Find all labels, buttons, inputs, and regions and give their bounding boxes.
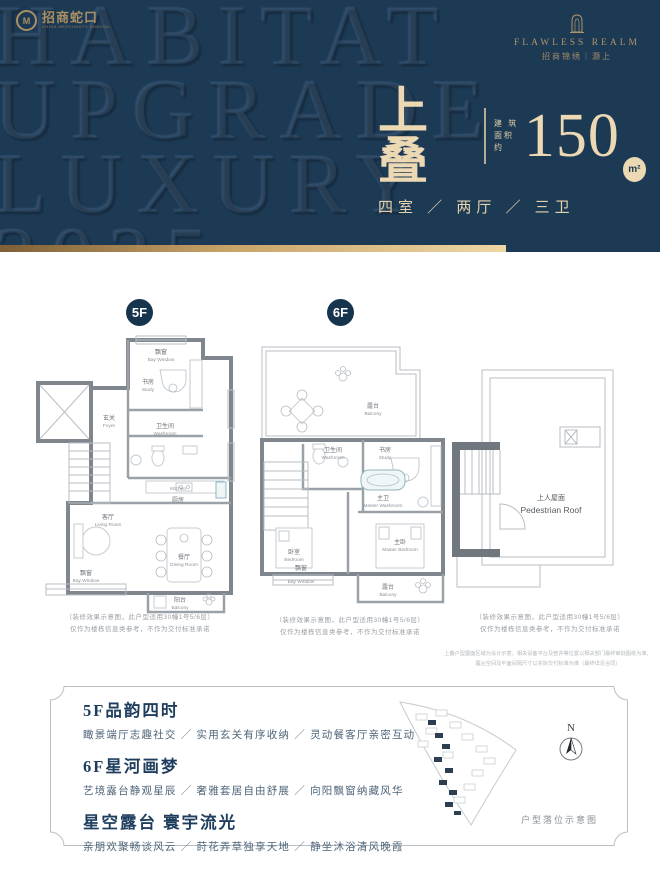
- room-label: 露台Balcony: [364, 402, 382, 417]
- feature-box: 5F品韵四时 瞰景端厅志趣社交 ／ 实用玄关有序收纳 ／ 灵动餐客厅亲密互动 6…: [50, 686, 628, 846]
- feature-item: 星空露台 寰宇流光 亲朋欢聚畅谈风云 ／ 莳花弄草独享天地 ／ 静坐沐浴清风晚霞: [83, 809, 415, 854]
- room-label: 露台Balcony: [379, 583, 397, 598]
- feature-text-column: 5F品韵四时 瞰景端厅志趣社交 ／ 实用玄关有序收纳 ／ 灵动餐客厅亲密互动 6…: [83, 697, 415, 865]
- roof-label-en: Pedestrian Roof: [521, 505, 583, 515]
- feature-title: 5F品韵四时: [83, 697, 415, 721]
- divider-line: [484, 108, 486, 164]
- room-label: 阳台Balcony: [171, 596, 189, 611]
- plan-disclaimer-6f: （装修效果示意图，此户型适用30幢1号5/6层）仅作为楼栋信息类参考，不作为交付…: [250, 615, 450, 638]
- room-label: 飘窗Bay Window: [73, 569, 100, 584]
- area-label-1: 建 筑: [494, 118, 522, 130]
- room-spec: 四室 ／ 两厅 ／ 三卫: [378, 196, 646, 217]
- plan-disclaimer-roof: （装修效果示意图，此户型适用30幢1号5/6层）仅作为楼栋信息类参考，不作为交付…: [443, 612, 657, 635]
- floorplan-6f: 露台Balcony 卫生间Washroom 书房Study 主卫Master W…: [253, 332, 448, 632]
- siteplan-caption: 户型落位示意图: [521, 813, 598, 826]
- floorplan-roof: 上人屋面 Pedestrian Roof: [445, 354, 660, 654]
- floor5-badge: 5F: [126, 299, 153, 326]
- area-unit-badge: m²: [623, 157, 646, 182]
- gold-divider-bar: [0, 245, 506, 252]
- room-label: 书房Study: [142, 378, 155, 393]
- project-name-en: FLAWLESS REALM: [512, 38, 642, 48]
- room-label: 客厅Living Room: [95, 513, 122, 528]
- room-label: 卫生间Washroom: [153, 422, 176, 437]
- area-value: 150: [524, 105, 620, 167]
- headline-block: 上叠 建 筑 面积约 150 m² 四室 ／ 两厅 ／ 三卫: [378, 86, 646, 217]
- siteplan-diagram: [388, 694, 538, 834]
- feature-title: 6F星河画梦: [83, 753, 415, 777]
- emblem-icon: [568, 12, 586, 34]
- brand-mark-icon: M: [16, 10, 37, 31]
- room-label: 主卫Master Washroom: [363, 494, 402, 509]
- brand-subtitle: CHINA MERCHANTS SHEKOU: [42, 25, 110, 29]
- roof-label: 上人屋面: [537, 493, 565, 502]
- room-label: 玄关Foyer: [103, 414, 116, 429]
- room-label: 书房Study: [379, 446, 392, 461]
- feature-title: 星空露台 寰宇流光: [83, 809, 415, 833]
- area-label-2: 面积约: [494, 130, 522, 154]
- plan-disclaimer-5f: （装修效果示意图，此户型适用30幢1号5/6层）仅作为楼栋信息类参考，不作为交付…: [35, 612, 245, 635]
- feature-desc: 亲朋欢聚畅谈风云 ／ 莳花弄草独享天地 ／ 静坐沐浴清风晚霞: [83, 839, 415, 854]
- feature-item: 6F星河画梦 艺境露台静观星辰 ／ 奢雅套居自由舒展 ／ 向阳飘窗纳藏风华: [83, 753, 415, 798]
- brand-name: 招商蛇口: [42, 11, 110, 25]
- project-name-cn: 招商锦绣｜灏上: [512, 51, 642, 62]
- compass-icon: N: [555, 720, 587, 768]
- site-building-outline: [416, 710, 495, 803]
- feature-desc: 艺境露台静观星辰 ／ 奢雅套居自由舒展 ／ 向阳飘窗纳藏风华: [83, 783, 415, 798]
- floor6-badge: 6F: [327, 299, 354, 326]
- floorplan-5f: 飘窗Bay Window 书房Study 玄关Foyer 卫生间Washroom…: [28, 328, 256, 620]
- header-banner: HABITAT UPGRADE LUXURY 2025 M 招商蛇口 CHINA…: [0, 0, 660, 252]
- brand-logo-left: M 招商蛇口 CHINA MERCHANTS SHEKOU: [16, 10, 110, 31]
- room-label: 厨房Kitchen: [170, 486, 186, 504]
- brand-logo-right: FLAWLESS REALM 招商锦绣｜灏上: [512, 12, 642, 62]
- room-label: 飘窗Bay Window: [148, 348, 175, 363]
- feature-desc: 瞰景端厅志趣社交 ／ 实用玄关有序收纳 ／ 灵动餐客厅亲密互动: [83, 727, 415, 742]
- room-label: 卫生间Washroom: [321, 446, 344, 461]
- poster-page: HABITAT UPGRADE LUXURY 2025 M 招商蛇口 CHINA…: [0, 0, 660, 880]
- roof-extra-note: 上叠户型屋面区域为设计示意，相关设备平台及管井等位置以相关部门最终审批图纸为准，…: [436, 650, 660, 670]
- unit-type-title: 上叠: [378, 86, 478, 186]
- feature-item: 5F品韵四时 瞰景端厅志趣社交 ／ 实用玄关有序收纳 ／ 灵动餐客厅亲密互动: [83, 697, 415, 742]
- svg-text:N: N: [567, 722, 575, 734]
